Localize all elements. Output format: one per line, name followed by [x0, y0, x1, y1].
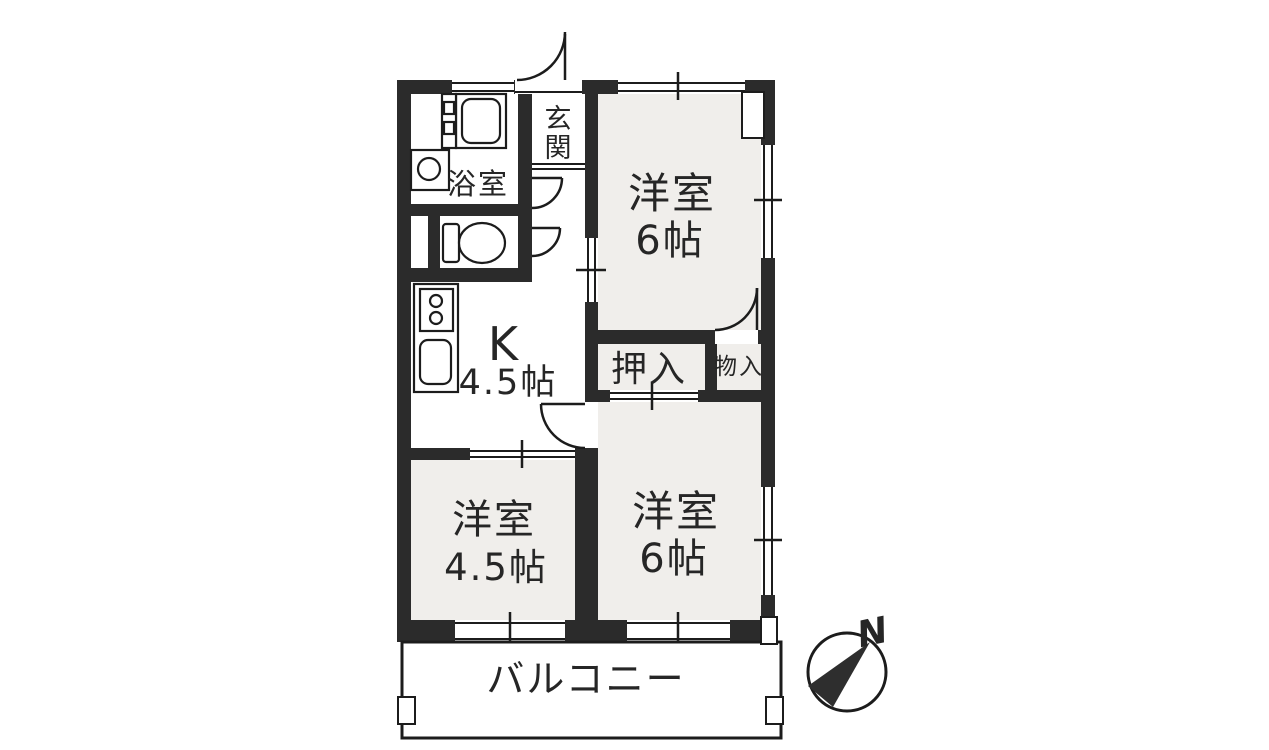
wall-sw-se-divider [575, 448, 598, 620]
washbasin-icon [411, 150, 449, 190]
compass-icon: N [808, 609, 894, 711]
label-bathroom: 浴室 [447, 167, 509, 201]
label-room-ne-size: 6帖 [635, 218, 704, 264]
label-genkan-char1: 玄 [545, 104, 574, 135]
bathtub-icon [442, 94, 506, 148]
label-balcony: バルコニー [486, 657, 685, 701]
door-entrance [517, 32, 565, 80]
label-room-ne: 洋室 [628, 169, 716, 218]
wall-toilet-west [428, 216, 440, 268]
wall-sanitary-south [411, 268, 532, 282]
label-room-sw: 洋室 [452, 497, 536, 543]
wall-bath-toilet-divider [411, 204, 532, 216]
toilet-icon [443, 223, 505, 263]
wall-bath-east [518, 94, 532, 282]
label-room-sw-size: 4.5帖 [444, 546, 548, 589]
wall-left [397, 80, 411, 642]
label-kitchen-size: 4.5帖 [459, 363, 558, 403]
label-genkan-char2: 関 [545, 133, 574, 164]
label-room-se: 洋室 [632, 487, 720, 536]
floor-plan-page: 玄 関 浴室 K 4.5帖 洋室 6帖 押入 物入 洋室 6帖 洋室 4.5帖 … [0, 0, 1269, 750]
floor-plan-drawing: 玄 関 浴室 K 4.5帖 洋室 6帖 押入 物入 洋室 6帖 洋室 4.5帖 … [0, 0, 1269, 750]
label-room-se-size: 6帖 [639, 536, 708, 582]
label-oshiire: 押入 [611, 349, 687, 390]
label-monoire: 物入 [714, 354, 764, 380]
kitchen-counter-icon [414, 284, 458, 392]
pillar-notch-ne [742, 92, 764, 138]
